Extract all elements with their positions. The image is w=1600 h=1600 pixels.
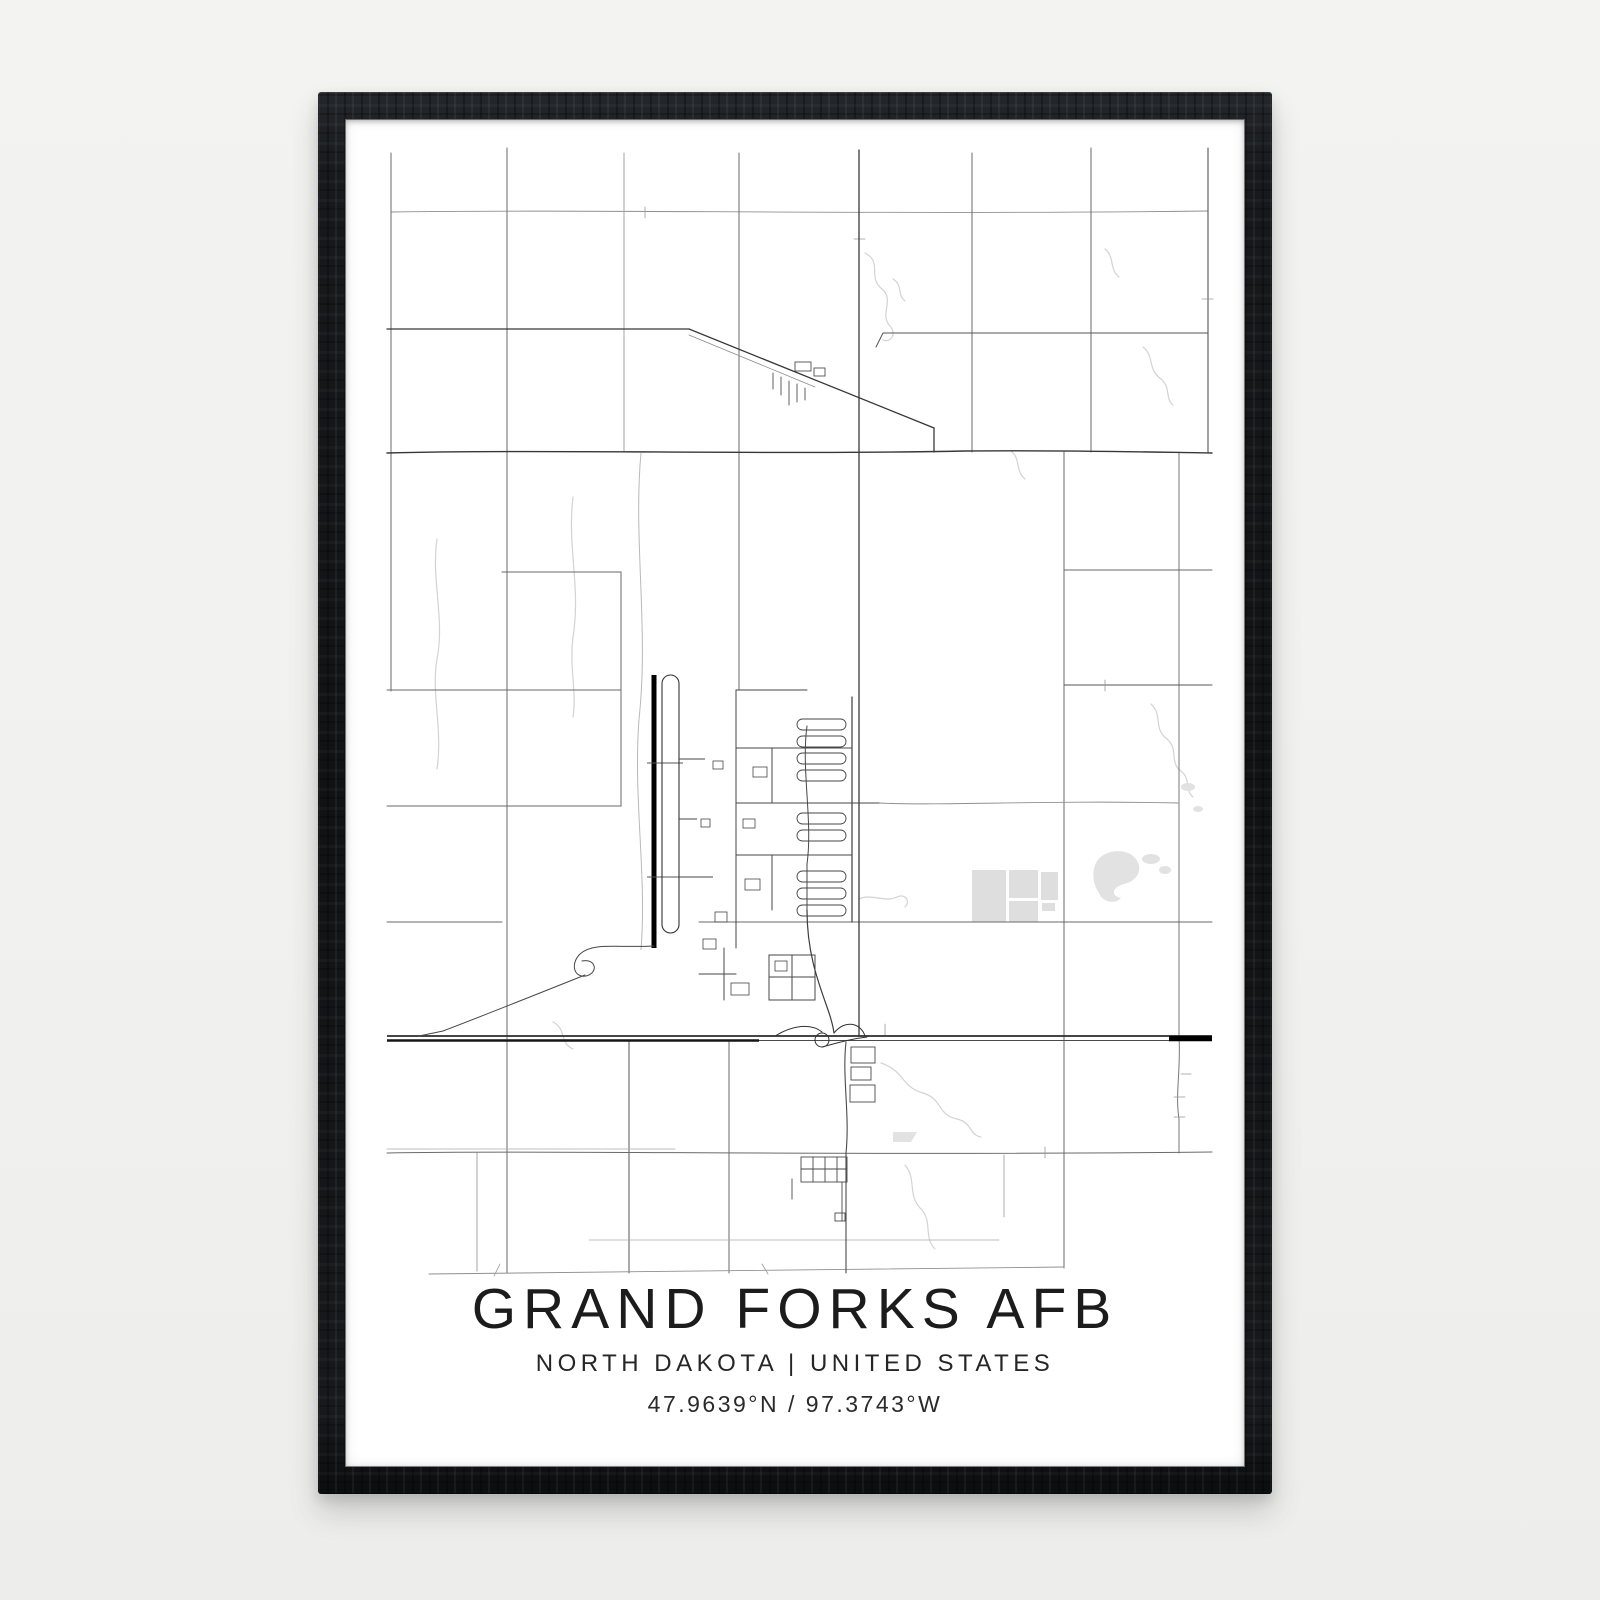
airfield [637,453,713,950]
street-map-graphic [345,119,1245,1467]
wall-background: GRAND FORKS AFB NORTH DAKOTA | UNITED ST… [0,0,1600,1600]
poster-coordinates: 47.9639°N / 97.3743°W [345,1391,1245,1418]
poster-subtitle: NORTH DAKOTA | UNITED STATES [345,1350,1245,1378]
primary-roads [387,150,1212,1035]
highway-us2 [387,1036,1212,1041]
poster-frame: GRAND FORKS AFB NORTH DAKOTA | UNITED ST… [318,92,1272,1494]
section-roads [387,148,1213,1276]
stream-lines [435,249,1193,1249]
pond-shapes [893,783,1203,1142]
building-footprints [972,870,1058,922]
poster-caption: GRAND FORKS AFB NORTH DAKOTA | UNITED ST… [345,1281,1245,1418]
airfield-perimeter [637,453,642,950]
south-settlement [792,1042,875,1273]
diagonal-town [773,362,825,405]
base-streets [419,690,879,1047]
map-poster: GRAND FORKS AFB NORTH DAKOTA | UNITED ST… [345,119,1245,1467]
taxiway [662,675,679,933]
poster-title: GRAND FORKS AFB [345,1281,1245,1338]
